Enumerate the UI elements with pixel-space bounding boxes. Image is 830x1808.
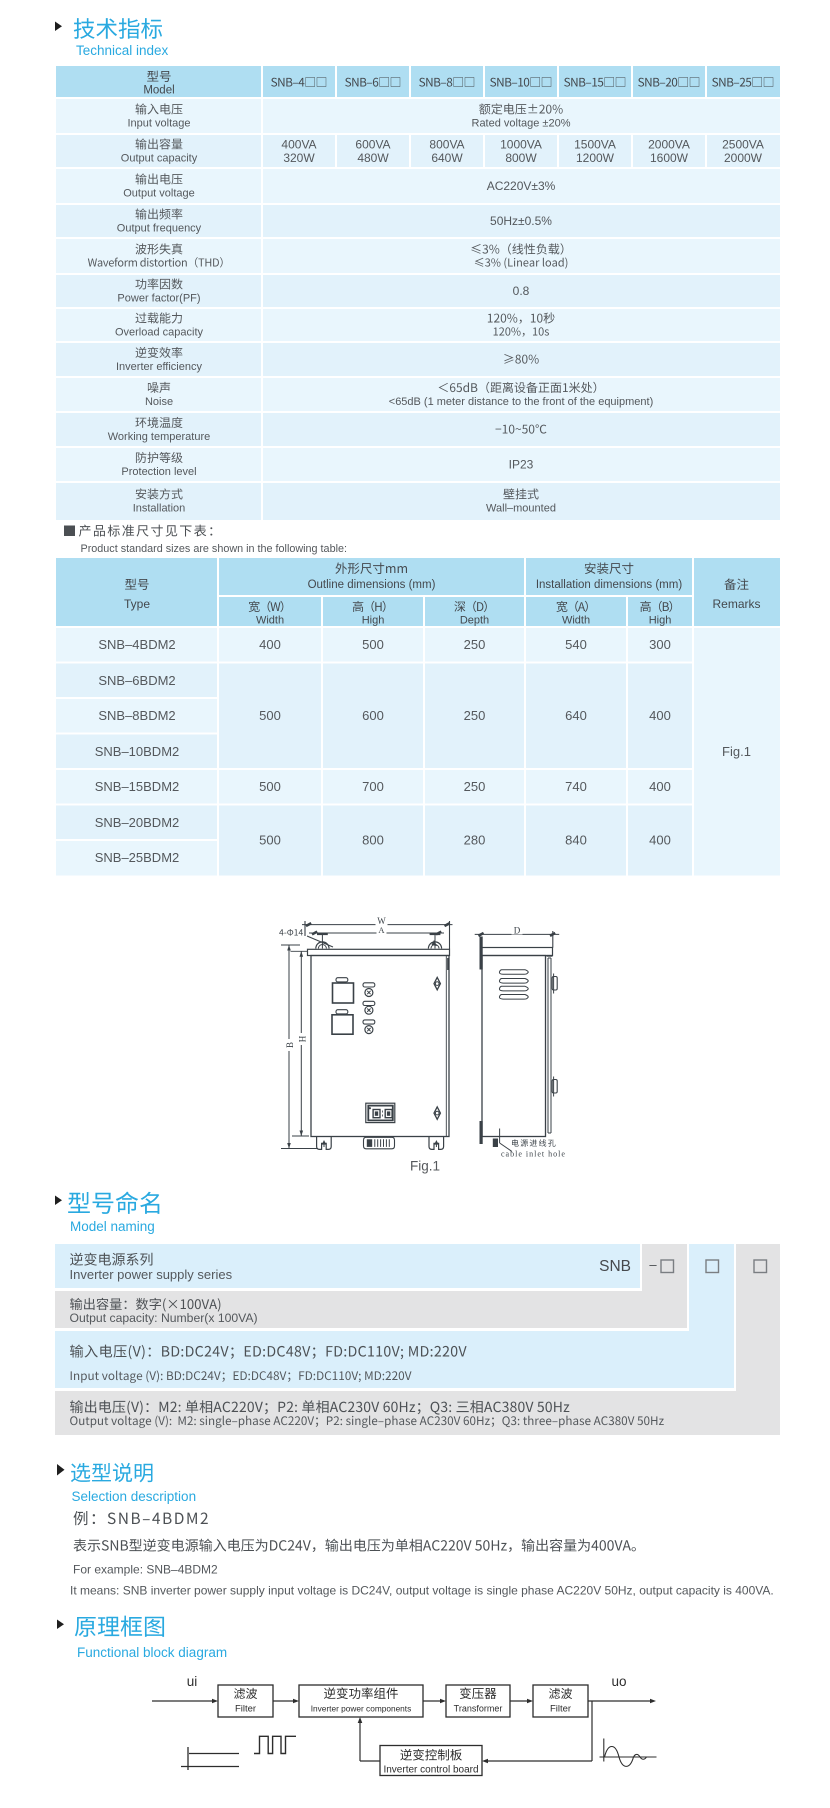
svg-text:800W: 800W: [505, 151, 537, 165]
svg-text:Fig.1: Fig.1: [722, 744, 751, 759]
svg-text:2500VA: 2500VA: [722, 138, 764, 152]
svg-text:Model: Model: [143, 85, 174, 97]
svg-text:Filter: Filter: [550, 1704, 571, 1715]
svg-text:Power factor(PF): Power factor(PF): [117, 293, 200, 305]
svg-text:Protection level: Protection level: [121, 466, 196, 478]
svg-text:High: High: [649, 615, 672, 627]
svg-text:1500VA: 1500VA: [574, 138, 616, 152]
svg-text:SNB–4BDM2: SNB–4BDM2: [98, 637, 175, 652]
svg-text:320W: 320W: [283, 151, 315, 165]
svg-text:Rated voltage ±20%: Rated voltage ±20%: [472, 118, 571, 130]
svg-text:Installation dimensions (mm): Installation dimensions (mm): [536, 579, 683, 591]
svg-text:<65dB (1 meter distance to the: <65dB (1 meter distance to the front of …: [389, 396, 653, 408]
svg-text:Inverter power components: Inverter power components: [311, 1704, 412, 1714]
svg-text:ui: ui: [187, 1674, 198, 1689]
svg-text:400: 400: [649, 833, 671, 848]
svg-text:Remarks: Remarks: [712, 597, 760, 611]
svg-text:AC220V±3%: AC220V±3%: [487, 179, 556, 193]
svg-text:Transformer: Transformer: [454, 1704, 503, 1714]
svg-text:D: D: [514, 926, 521, 936]
svg-text:2000VA: 2000VA: [648, 138, 690, 152]
svg-text:–: –: [649, 1257, 657, 1272]
svg-text:700: 700: [362, 779, 384, 794]
svg-text:Fig.1: Fig.1: [410, 1159, 440, 1174]
svg-text:800: 800: [362, 833, 384, 848]
svg-text:1200W: 1200W: [576, 151, 615, 165]
svg-text:400: 400: [259, 637, 281, 652]
svg-text:Output frequency: Output frequency: [117, 223, 202, 235]
svg-text:Outline dimensions (mm): Outline dimensions (mm): [308, 579, 436, 591]
svg-text:400: 400: [649, 708, 671, 723]
svg-text:Depth: Depth: [460, 615, 489, 627]
svg-text:Product standard sizes are sho: Product standard sizes are shown in the …: [81, 543, 347, 555]
svg-text:Selection description: Selection description: [72, 1489, 197, 1504]
svg-text:For example: SNB–4BDM2: For example: SNB–4BDM2: [73, 1563, 218, 1577]
svg-text:1600W: 1600W: [650, 151, 689, 165]
svg-text:480W: 480W: [357, 151, 389, 165]
svg-text:640W: 640W: [431, 151, 463, 165]
svg-text:1000VA: 1000VA: [500, 138, 542, 152]
svg-text:400VA: 400VA: [281, 138, 316, 152]
svg-text:600: 600: [362, 708, 384, 723]
svg-text:500: 500: [259, 779, 281, 794]
svg-text:SNB: SNB: [599, 1258, 631, 1275]
svg-text:Installation: Installation: [133, 503, 186, 515]
svg-text:640: 640: [565, 708, 587, 723]
svg-text:2000W: 2000W: [724, 151, 763, 165]
svg-text:Filter: Filter: [235, 1704, 256, 1715]
svg-text:Type: Type: [124, 597, 150, 611]
svg-text:600VA: 600VA: [355, 138, 390, 152]
svg-text:IP23: IP23: [509, 458, 534, 472]
svg-text:SNB–10BDM2: SNB–10BDM2: [95, 744, 180, 759]
svg-text:Functional block diagram: Functional block diagram: [77, 1645, 227, 1660]
svg-text:SNB–6BDM2: SNB–6BDM2: [98, 673, 175, 688]
svg-text:Output voltage: Output voltage: [123, 188, 195, 200]
svg-text:250: 250: [464, 637, 486, 652]
svg-text:250: 250: [464, 708, 486, 723]
svg-text:Output capacity: Output capacity: [121, 153, 198, 165]
svg-text:300: 300: [649, 637, 671, 652]
svg-text:Wall–mounted: Wall–mounted: [486, 503, 556, 515]
svg-text:280: 280: [464, 833, 486, 848]
svg-text:uo: uo: [611, 1674, 626, 1689]
svg-text:740: 740: [565, 779, 587, 794]
svg-text:500: 500: [259, 833, 281, 848]
svg-text:Input voltage: Input voltage: [128, 118, 191, 130]
svg-text:Inverter efficiency: Inverter efficiency: [116, 361, 203, 373]
svg-text:High: High: [362, 615, 385, 627]
svg-text:Width: Width: [256, 615, 284, 627]
svg-text:400: 400: [649, 779, 671, 794]
svg-text:Inverter control board: Inverter control board: [383, 1765, 478, 1776]
svg-text:Technical index: Technical index: [76, 43, 169, 58]
svg-text:SNB–8BDM2: SNB–8BDM2: [98, 708, 175, 723]
svg-text:800VA: 800VA: [429, 138, 464, 152]
svg-text:500: 500: [362, 637, 384, 652]
svg-text:SNB–20BDM2: SNB–20BDM2: [95, 815, 180, 830]
svg-text:Working temperature: Working temperature: [108, 431, 211, 443]
svg-text:Width: Width: [562, 615, 590, 627]
svg-text:50Hz±0.5%: 50Hz±0.5%: [490, 214, 552, 228]
svg-text:0.8: 0.8: [513, 284, 530, 298]
svg-text:540: 540: [565, 637, 587, 652]
svg-text:A: A: [378, 925, 385, 935]
svg-text:250: 250: [464, 779, 486, 794]
svg-text:Overload capacity: Overload capacity: [115, 327, 204, 339]
svg-text:H: H: [297, 1035, 307, 1042]
svg-text:500: 500: [259, 708, 281, 723]
svg-text:Inverter power supply series: Inverter power supply series: [70, 1267, 233, 1282]
svg-text:B: B: [285, 1042, 295, 1048]
svg-text:cable inlet hole: cable inlet hole: [501, 1150, 566, 1159]
svg-text:Model naming: Model naming: [70, 1219, 155, 1234]
svg-text:SNB–15BDM2: SNB–15BDM2: [95, 779, 180, 794]
svg-text:It means: SNB inverter power s: It means: SNB inverter power supply inpu…: [70, 1584, 774, 1598]
svg-text:Noise: Noise: [145, 396, 173, 408]
svg-text:840: 840: [565, 833, 587, 848]
svg-text:SNB–25BDM2: SNB–25BDM2: [95, 850, 180, 865]
svg-text:Output capacity: Number(x 100V: Output capacity: Number(x 100VA): [70, 1311, 258, 1325]
